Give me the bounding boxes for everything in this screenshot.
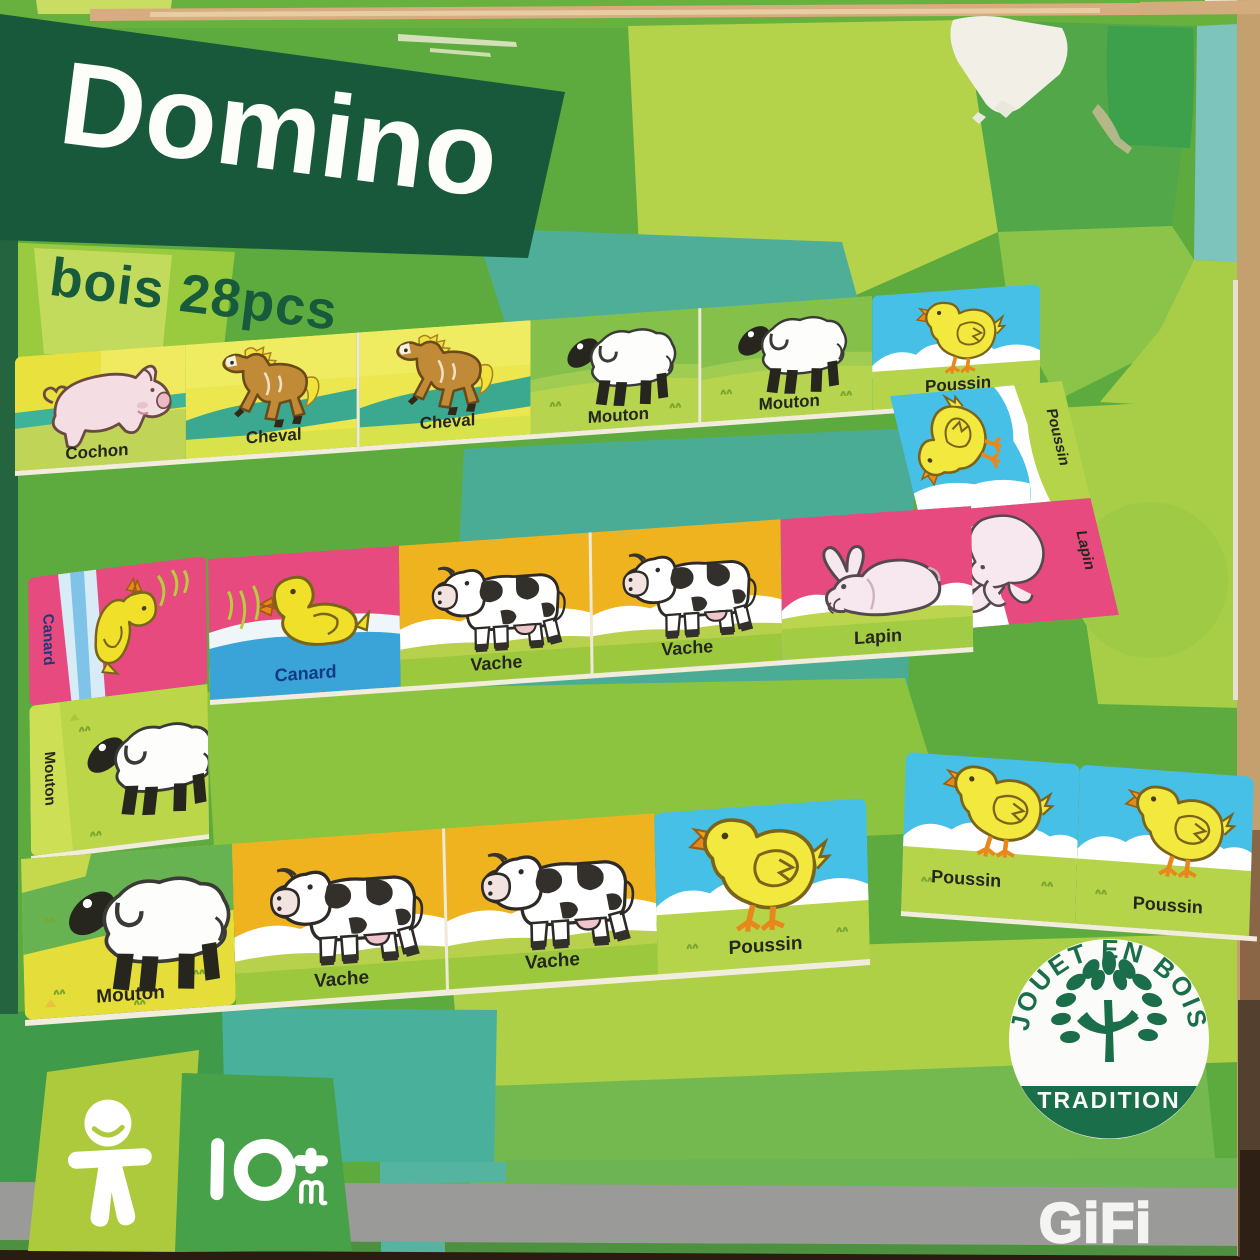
- svg-text:Vache: Vache: [470, 651, 522, 675]
- svg-text:Cheval: Cheval: [246, 425, 302, 448]
- svg-text:Mouton: Mouton: [41, 750, 59, 806]
- svg-text:Cheval: Cheval: [420, 410, 476, 433]
- svg-text:Canard: Canard: [275, 661, 337, 685]
- svg-text:Canard: Canard: [39, 613, 56, 667]
- svg-text:Vache: Vache: [525, 949, 580, 974]
- svg-text:Lapin: Lapin: [854, 625, 902, 648]
- svg-text:TRADITION: TRADITION: [1037, 1087, 1180, 1113]
- svg-text:Vache: Vache: [314, 967, 369, 992]
- svg-text:Vache: Vache: [661, 636, 713, 660]
